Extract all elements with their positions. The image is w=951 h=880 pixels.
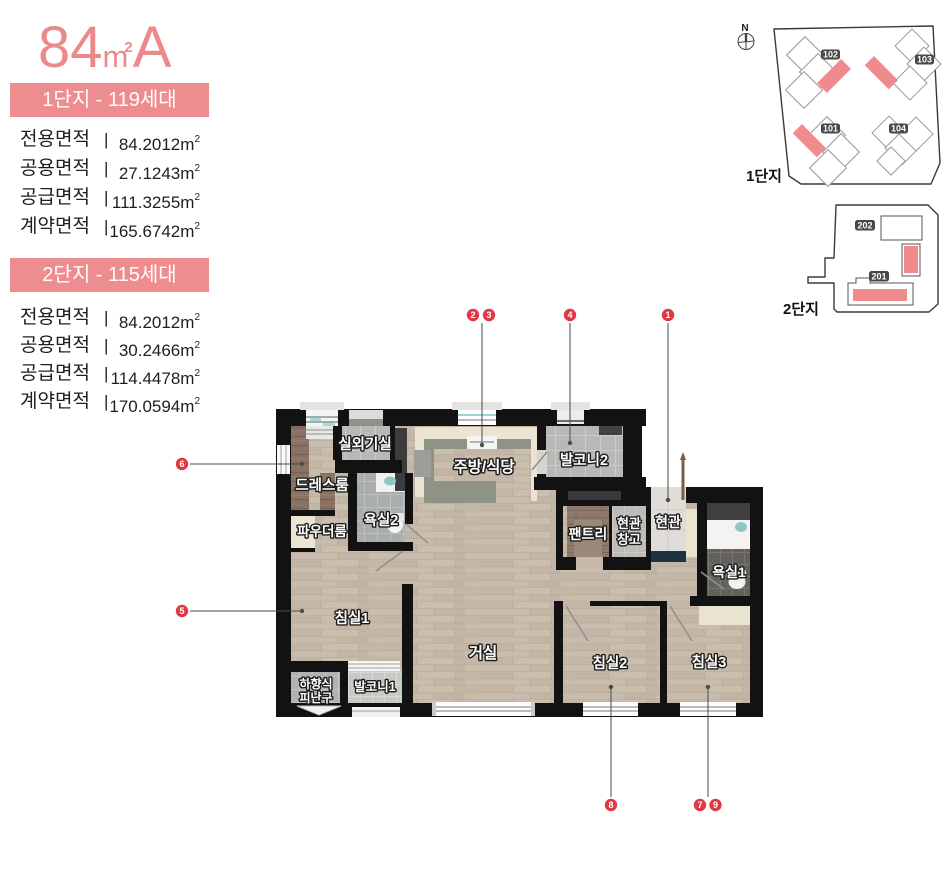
- svg-text:파우더룸: 파우더룸: [297, 524, 347, 539]
- svg-text:103: 103: [917, 55, 932, 65]
- svg-text:드레스룸: 드레스룸: [295, 477, 348, 494]
- svg-text:4: 4: [567, 310, 572, 320]
- svg-text:104: 104: [891, 124, 906, 134]
- svg-text:침실2: 침실2: [593, 655, 628, 672]
- svg-text:202: 202: [857, 221, 872, 231]
- svg-text:2: 2: [470, 310, 475, 320]
- svg-text:2단지: 2단지: [783, 301, 819, 318]
- svg-text:201: 201: [871, 272, 886, 282]
- svg-text:1: 1: [665, 310, 670, 320]
- svg-text:101: 101: [823, 124, 838, 134]
- svg-text:102: 102: [823, 50, 838, 60]
- svg-text:5: 5: [179, 606, 184, 616]
- svg-text:침실3: 침실3: [692, 654, 727, 671]
- svg-text:N: N: [741, 23, 748, 34]
- svg-text:욕실1: 욕실1: [712, 564, 746, 580]
- svg-text:현관: 현관: [655, 514, 681, 530]
- svg-text:3: 3: [486, 310, 491, 320]
- svg-text:현관: 현관: [617, 516, 641, 531]
- svg-text:하향식: 하향식: [299, 676, 332, 691]
- svg-text:침실1: 침실1: [335, 610, 370, 627]
- svg-text:8: 8: [608, 800, 613, 810]
- svg-text:팬트리: 팬트리: [569, 526, 608, 542]
- svg-text:9: 9: [713, 800, 718, 810]
- svg-text:피난구: 피난구: [299, 690, 332, 705]
- svg-text:욕실2: 욕실2: [364, 512, 399, 529]
- svg-text:실외기실: 실외기실: [338, 435, 391, 453]
- svg-text:7: 7: [697, 800, 702, 810]
- svg-text:발코니1: 발코니1: [354, 679, 396, 694]
- svg-text:발코니2: 발코니2: [560, 452, 608, 469]
- svg-text:거실: 거실: [469, 644, 498, 662]
- svg-text:주방/식당: 주방/식당: [453, 458, 515, 476]
- svg-text:창고: 창고: [617, 532, 641, 547]
- svg-text:6: 6: [179, 459, 184, 469]
- svg-text:1단지: 1단지: [746, 168, 782, 185]
